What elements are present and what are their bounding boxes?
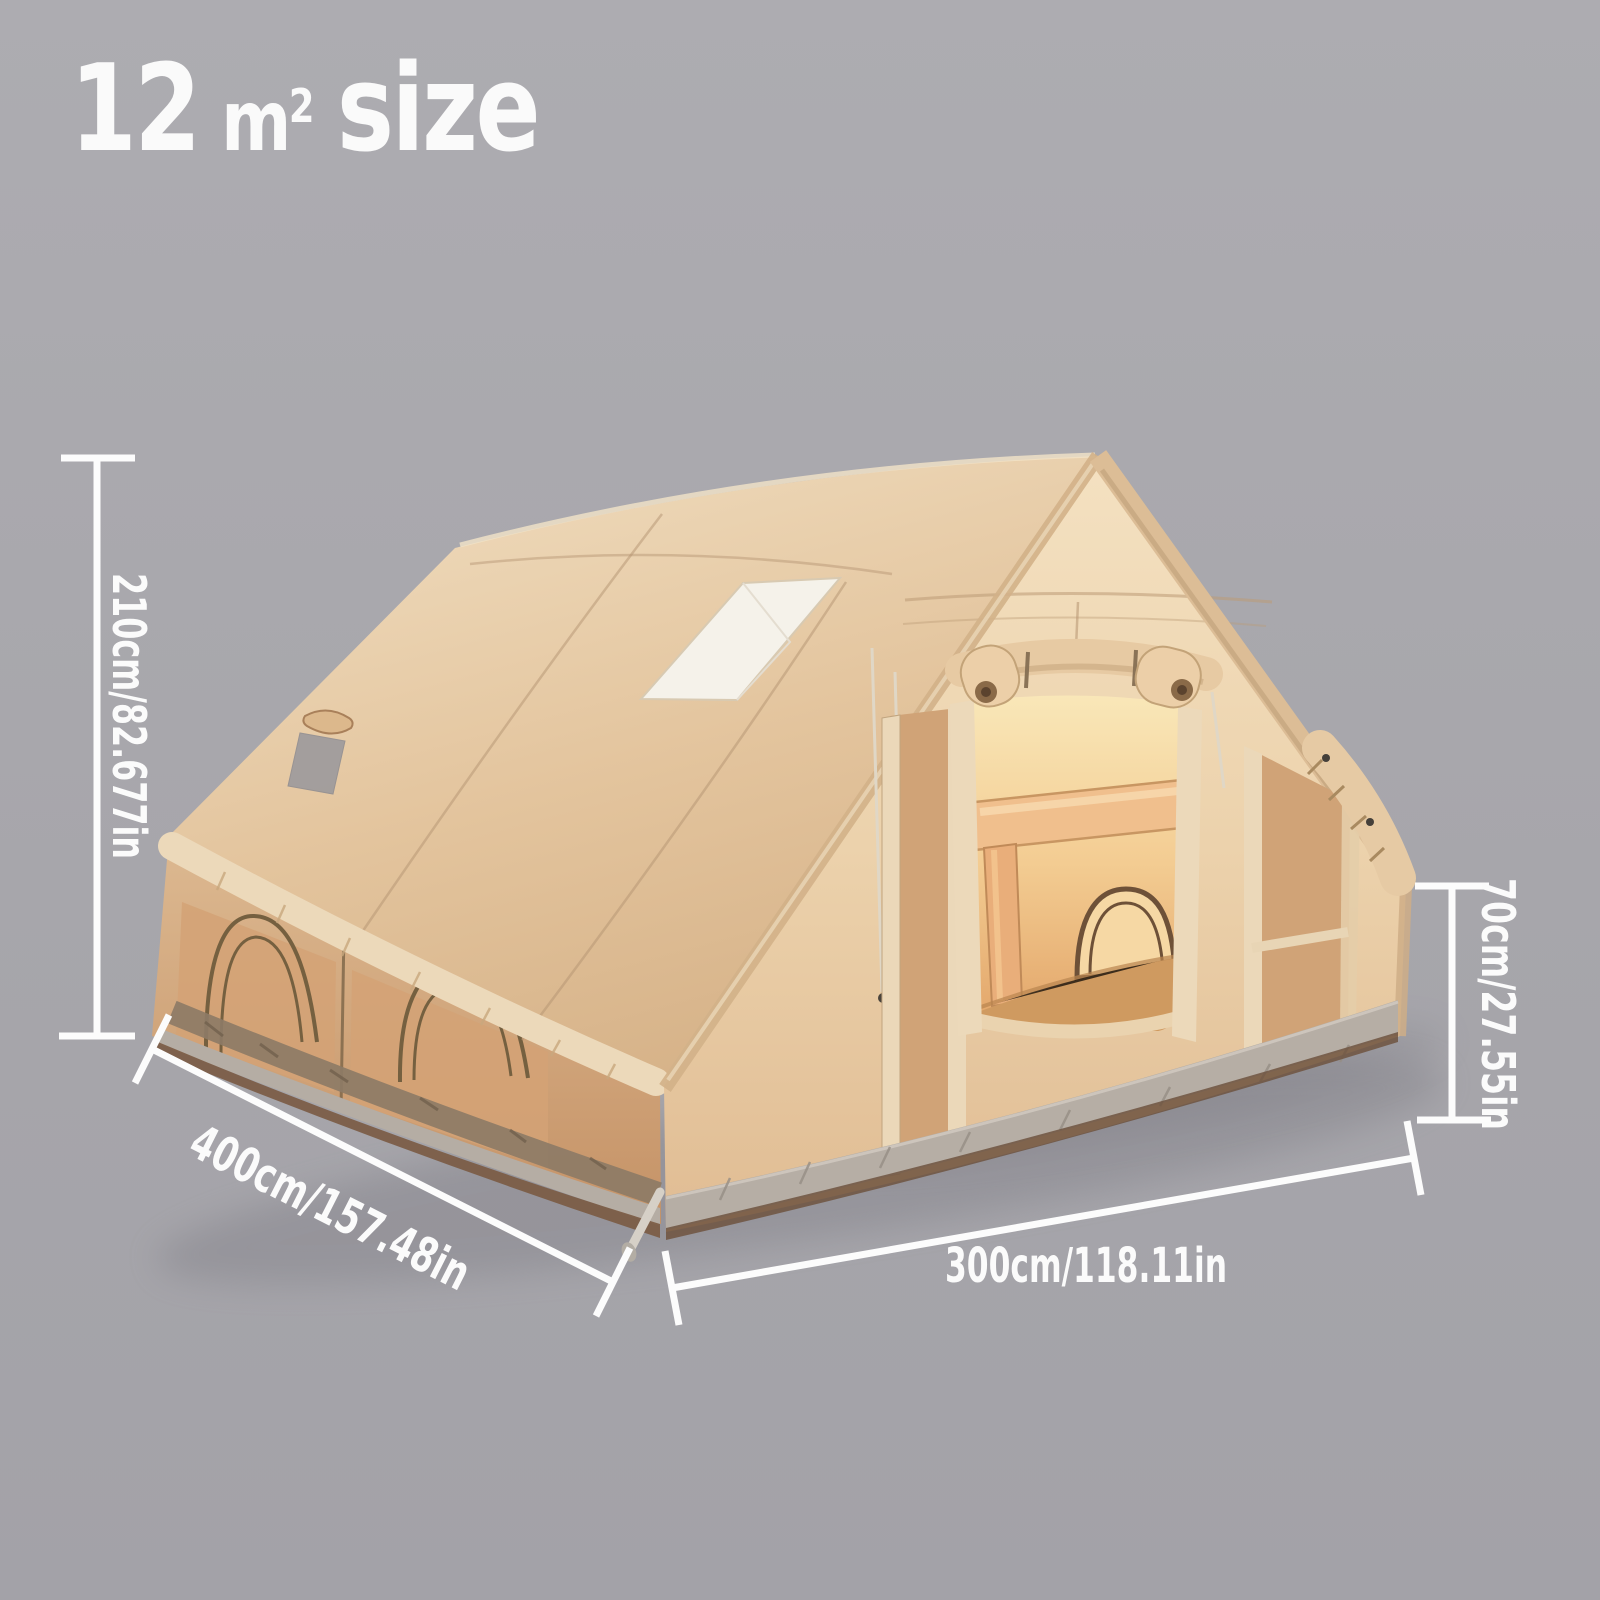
strap-dot (1322, 754, 1330, 762)
area-unit: m2 (221, 79, 314, 163)
size-word: size (337, 50, 538, 170)
tent-dimension-diagram: 210cm/82.677in 70cm/27.55in 400cm/157.48… (0, 0, 1600, 1600)
height-dimension-label: 210cm/82.677in (102, 573, 156, 859)
panel-trim (882, 715, 900, 1177)
area-unit-base: m (221, 72, 289, 170)
front-width-dimension-label: 300cm/118.11in (945, 1238, 1227, 1294)
product-dimension-image: 210cm/82.677in 70cm/27.55in 400cm/157.48… (0, 0, 1600, 1600)
panel-trim (1244, 746, 1262, 1057)
strap-dot (1366, 818, 1374, 826)
area-value: 12 (70, 50, 199, 170)
page-title: 12 m2 size (70, 50, 538, 170)
area-unit-exponent: 2 (289, 79, 315, 133)
flap-coil-center (1177, 685, 1187, 695)
right-corner-edge (1400, 886, 1406, 1036)
flap-coil-center (981, 687, 991, 697)
side-wall-height-dimension-label: 70cm/27.55in (1471, 878, 1525, 1130)
